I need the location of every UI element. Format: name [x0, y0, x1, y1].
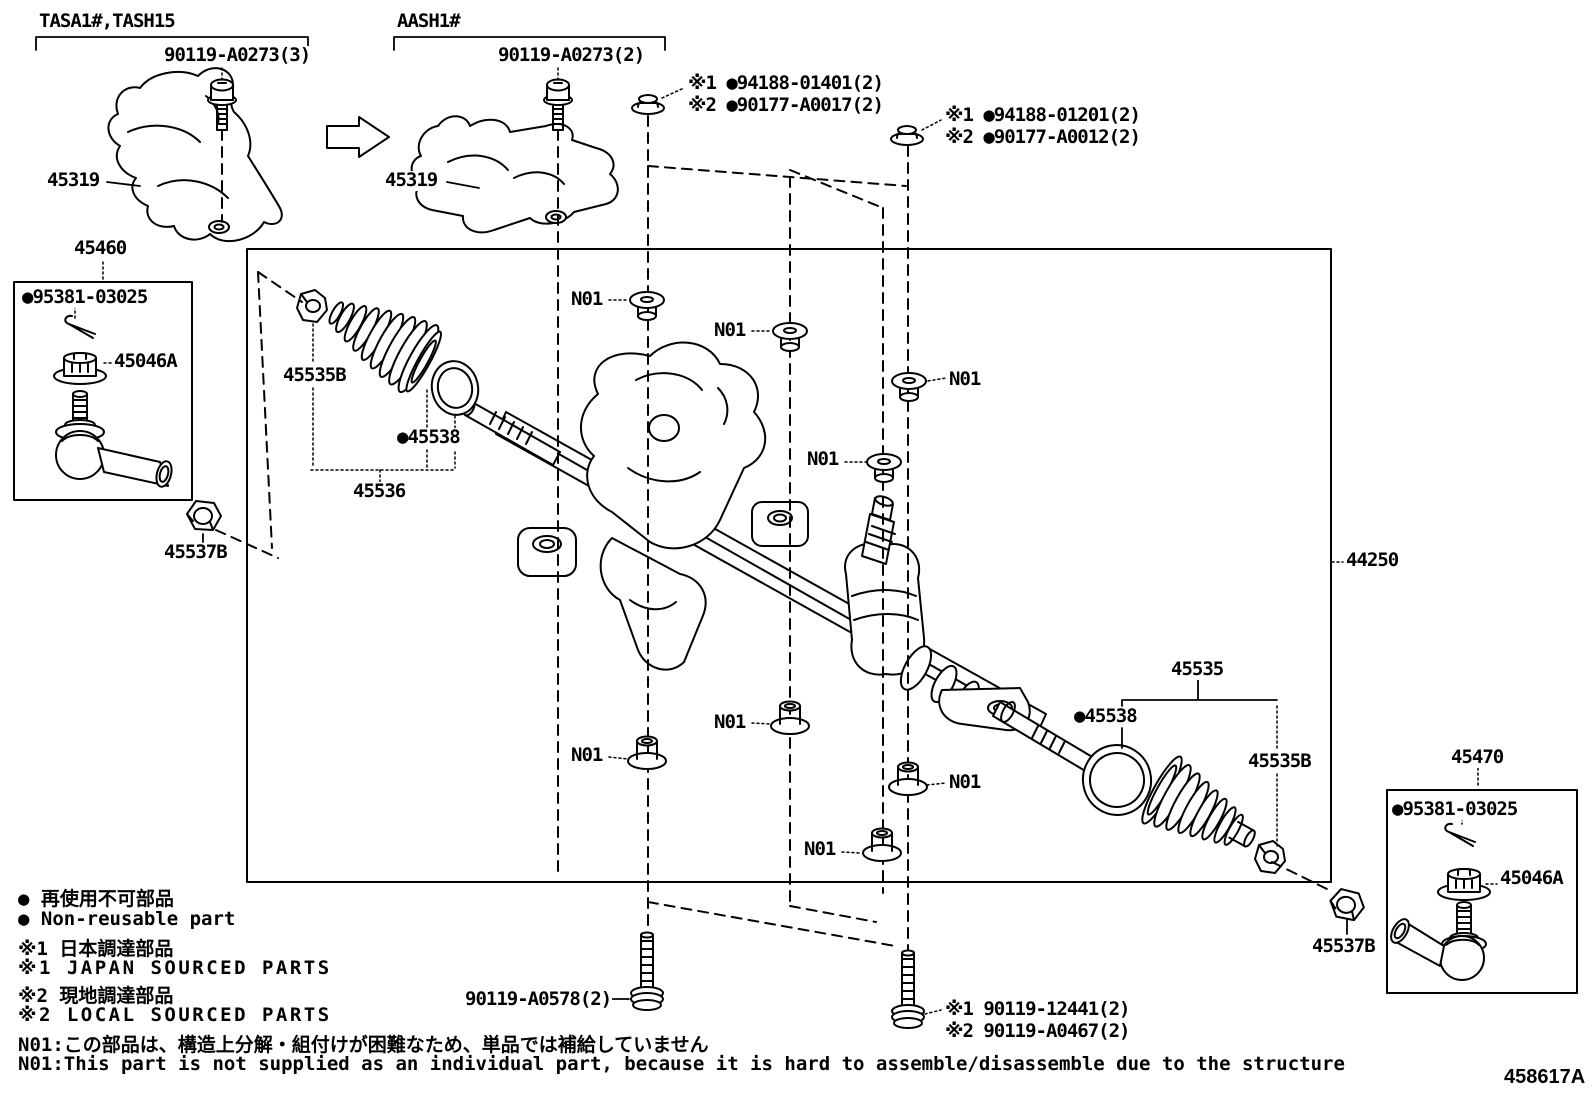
callout-nut-b-2: ※2 ●90177-A0012(2) — [944, 128, 1141, 148]
legend-nonreusable-jp: ● 再使用不可部品 — [18, 884, 174, 911]
variant-header-right: AASH1# — [396, 12, 461, 32]
callout-nut-a-1: ※1 ●94188-01401(2) — [687, 74, 884, 94]
callout-shield-bolt-left: 90119-A0273(3) — [163, 46, 311, 66]
variant-header-left: TASA1#,TASH15 — [38, 12, 176, 32]
callout-shield-bolt-right: 90119-A0273(2) — [497, 46, 645, 66]
callout-grommet-4: N01 — [806, 450, 839, 470]
callout-heat-shield-right: 45319 — [384, 171, 438, 191]
callout-cotter-pin-right: ●95381-03025 — [1391, 800, 1518, 820]
flange-nut-a-drawing — [632, 95, 664, 114]
callout-boot-clamp-right: 45535B — [1247, 752, 1312, 772]
shield-bolt-right-drawing — [544, 80, 572, 131]
callout-grommet-1: N01 — [570, 290, 603, 310]
callout-grommet-6: N01 — [570, 746, 603, 766]
callout-nut-a-2: ※2 ●90177-A0017(2) — [687, 96, 884, 116]
callout-boot-left: 45536 — [352, 482, 406, 502]
callout-cotter-pin-left: ●95381-03025 — [21, 288, 148, 308]
callout-lock-nut-left: 45537B — [163, 543, 228, 563]
callout-mount-bolt-right-2: ※2 90119-A0467(2) — [944, 1022, 1131, 1042]
mount-bolt-right-drawing — [892, 951, 924, 1029]
flange-nut-b-drawing — [891, 126, 923, 145]
arrow-icon — [327, 117, 389, 157]
diagram-code: 458617A — [1504, 1066, 1585, 1089]
callout-grommet-7: N01 — [948, 773, 981, 793]
legend-n01-note-en: N01:This part is not supplied as an indi… — [18, 1053, 1345, 1075]
legend-local-sourced-en: ※2 LOCAL SOURCED PARTS — [18, 1004, 332, 1026]
callout-castle-nut-left: 45046A — [113, 352, 178, 372]
callout-boot-clamp-left: 45535B — [282, 366, 347, 386]
lock-nut-right-drawing — [1328, 888, 1366, 921]
parts-diagram-page: TASA1#,TASH15 AASH1# 90119-A0273(3) 9011… — [0, 0, 1592, 1099]
callout-mount-bolt-left: 90119-A0578(2) — [464, 990, 612, 1010]
tie-rod-end-left-drawing — [54, 316, 174, 489]
legend-japan-sourced-en: ※1 JAPAN SOURCED PARTS — [18, 957, 332, 979]
callout-grommet-2: N01 — [713, 321, 746, 341]
callout-boot-clip-left: ●45538 — [396, 428, 461, 448]
callout-nut-b-1: ※1 ●94188-01201(2) — [944, 106, 1141, 126]
callout-castle-nut-right: 45046A — [1499, 869, 1564, 889]
callout-gear-assembly: 44250 — [1345, 551, 1399, 571]
callout-tie-rod-left-box: 45460 — [73, 239, 127, 259]
callout-lock-nut-right: 45537B — [1311, 937, 1376, 957]
callout-grommet-3: N01 — [948, 370, 981, 390]
tie-rod-end-right-drawing — [1387, 824, 1490, 980]
heat-shield-left-drawing — [108, 68, 281, 241]
legend-nonreusable-en: ● Non-reusable part — [18, 908, 235, 930]
callout-boot-clip-right: ●45538 — [1073, 707, 1138, 727]
mount-bolt-left-drawing — [631, 933, 663, 1011]
boot-clamp-left-drawing — [297, 290, 327, 322]
callout-mount-bolt-right-1: ※1 90119-12441(2) — [944, 1000, 1131, 1020]
callout-grommet-8: N01 — [803, 840, 836, 860]
heat-shield-right-drawing — [412, 116, 618, 232]
callout-boot-right: 45535 — [1170, 660, 1224, 680]
callout-tie-rod-right-box: 45470 — [1450, 748, 1504, 768]
boot-clamp-right-drawing — [1255, 841, 1285, 873]
lock-nut-left-drawing — [187, 501, 221, 530]
callout-grommet-5: N01 — [713, 713, 746, 733]
callout-heat-shield-left: 45319 — [46, 171, 100, 191]
